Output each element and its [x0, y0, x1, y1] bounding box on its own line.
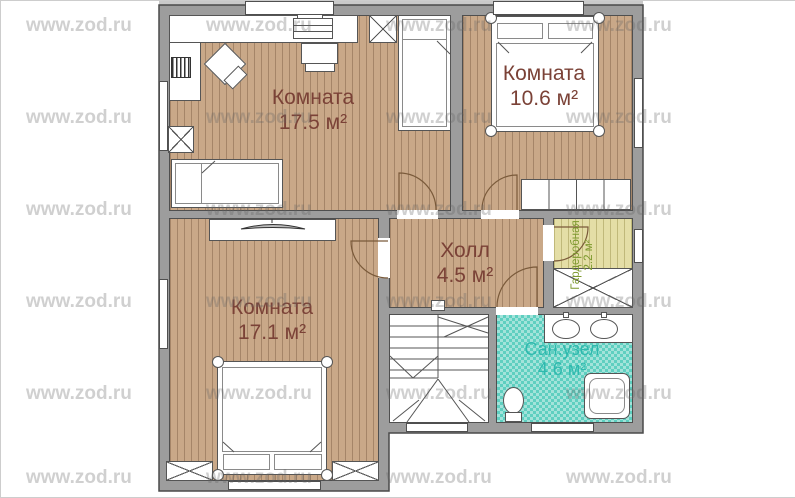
window: [159, 81, 168, 151]
floor-plan-canvas: Комната 17.5 м² Комната 10.6 м² Комната …: [0, 0, 795, 498]
bed-post: [593, 12, 605, 24]
wardrobe-4-sections: [521, 179, 631, 210]
single-bed-horizontal: [171, 159, 283, 208]
wardrobe-box-4: [332, 461, 379, 481]
watermark-text: www.zod.ru: [26, 383, 132, 405]
watermark-text: www.zod.ru: [26, 107, 132, 129]
watermark-text: www.zod.ru: [26, 467, 132, 489]
room-area: 10.6 м²: [510, 87, 578, 110]
door-opening: [397, 210, 438, 219]
bed-pillow: [175, 163, 202, 204]
room-area: 4.6 м²: [538, 359, 586, 379]
bed-post: [321, 469, 333, 481]
room-name: Сан.узел: [524, 339, 599, 359]
tap-icon: [601, 312, 607, 318]
wardrobe-box-2: [168, 126, 194, 153]
room-area: 2.2 м²: [583, 240, 595, 271]
watermark-text: www.zod.ru: [26, 291, 132, 313]
bed-pillow: [497, 23, 543, 39]
double-bed-2: [217, 361, 327, 475]
bookshelf-icon: [171, 57, 191, 78]
dresser-tv-stand: [209, 219, 336, 241]
sink-basin-1: [552, 319, 580, 339]
printer-icon: [293, 18, 333, 39]
window: [228, 481, 321, 490]
bed-mattress: [402, 39, 447, 127]
computer-desk: [301, 43, 338, 64]
window: [634, 229, 643, 263]
watermark-text: www.zod.ru: [26, 199, 132, 221]
shower-tray: [584, 373, 630, 419]
wardrobe-room-label: Гардеробная 2.2 м²: [559, 209, 607, 301]
door-opening: [481, 210, 519, 219]
bed-mattress: [201, 163, 279, 204]
keyboard-tray: [305, 63, 335, 72]
bed-blanket: [222, 367, 322, 452]
room-area: 17.1 м²: [238, 321, 306, 344]
room-name: Комната: [503, 62, 585, 85]
room-name: Комната: [231, 296, 313, 319]
bathroom-label: Сан.узел 4.6 м²: [499, 339, 625, 379]
bed-post: [212, 469, 224, 481]
hall-label: Холл 4.5 м²: [405, 238, 525, 288]
room-name: Гардеробная: [570, 220, 582, 290]
room-name: Холл: [440, 239, 490, 262]
stair-threshold: [431, 300, 445, 311]
bed-post: [485, 125, 497, 137]
single-bed-vertical: [398, 15, 451, 131]
room-17-1-label: Комната 17.1 м²: [192, 295, 352, 345]
window: [406, 423, 468, 432]
room-area: 4.5 м²: [437, 264, 493, 287]
window: [531, 423, 594, 432]
room-10-6-label: Комната 10.6 м²: [464, 61, 624, 111]
bed-pillow: [223, 454, 270, 470]
toilet-bowl: [503, 387, 524, 414]
tap-icon: [563, 312, 569, 318]
bed-post: [212, 356, 224, 368]
window: [493, 1, 584, 15]
door-opening: [378, 238, 390, 278]
sink-basin-2: [590, 319, 618, 339]
toilet-tank: [505, 412, 522, 422]
watermark-text: www.zod.ru: [386, 467, 492, 489]
bed-pillow: [548, 23, 593, 39]
room-17-5-label: Комната 17.5 м²: [233, 85, 393, 135]
window: [634, 78, 643, 148]
room-area: 17.5 м²: [279, 111, 347, 134]
bed-post: [321, 356, 333, 368]
door-opening: [543, 225, 554, 261]
staircase-floor: [389, 314, 489, 423]
shower-inner: [589, 378, 625, 414]
bed-pillow: [402, 19, 447, 40]
bed-post: [593, 125, 605, 137]
wardrobe-box-1: [369, 15, 397, 43]
watermark-text: www.zod.ru: [566, 467, 672, 489]
bed-pillow: [274, 454, 322, 470]
window: [245, 1, 334, 15]
watermark-text: www.zod.ru: [26, 15, 132, 37]
room-name: Комната: [272, 86, 354, 109]
door-opening: [496, 307, 538, 315]
window: [159, 279, 168, 349]
wardrobe-box-3: [166, 461, 213, 481]
